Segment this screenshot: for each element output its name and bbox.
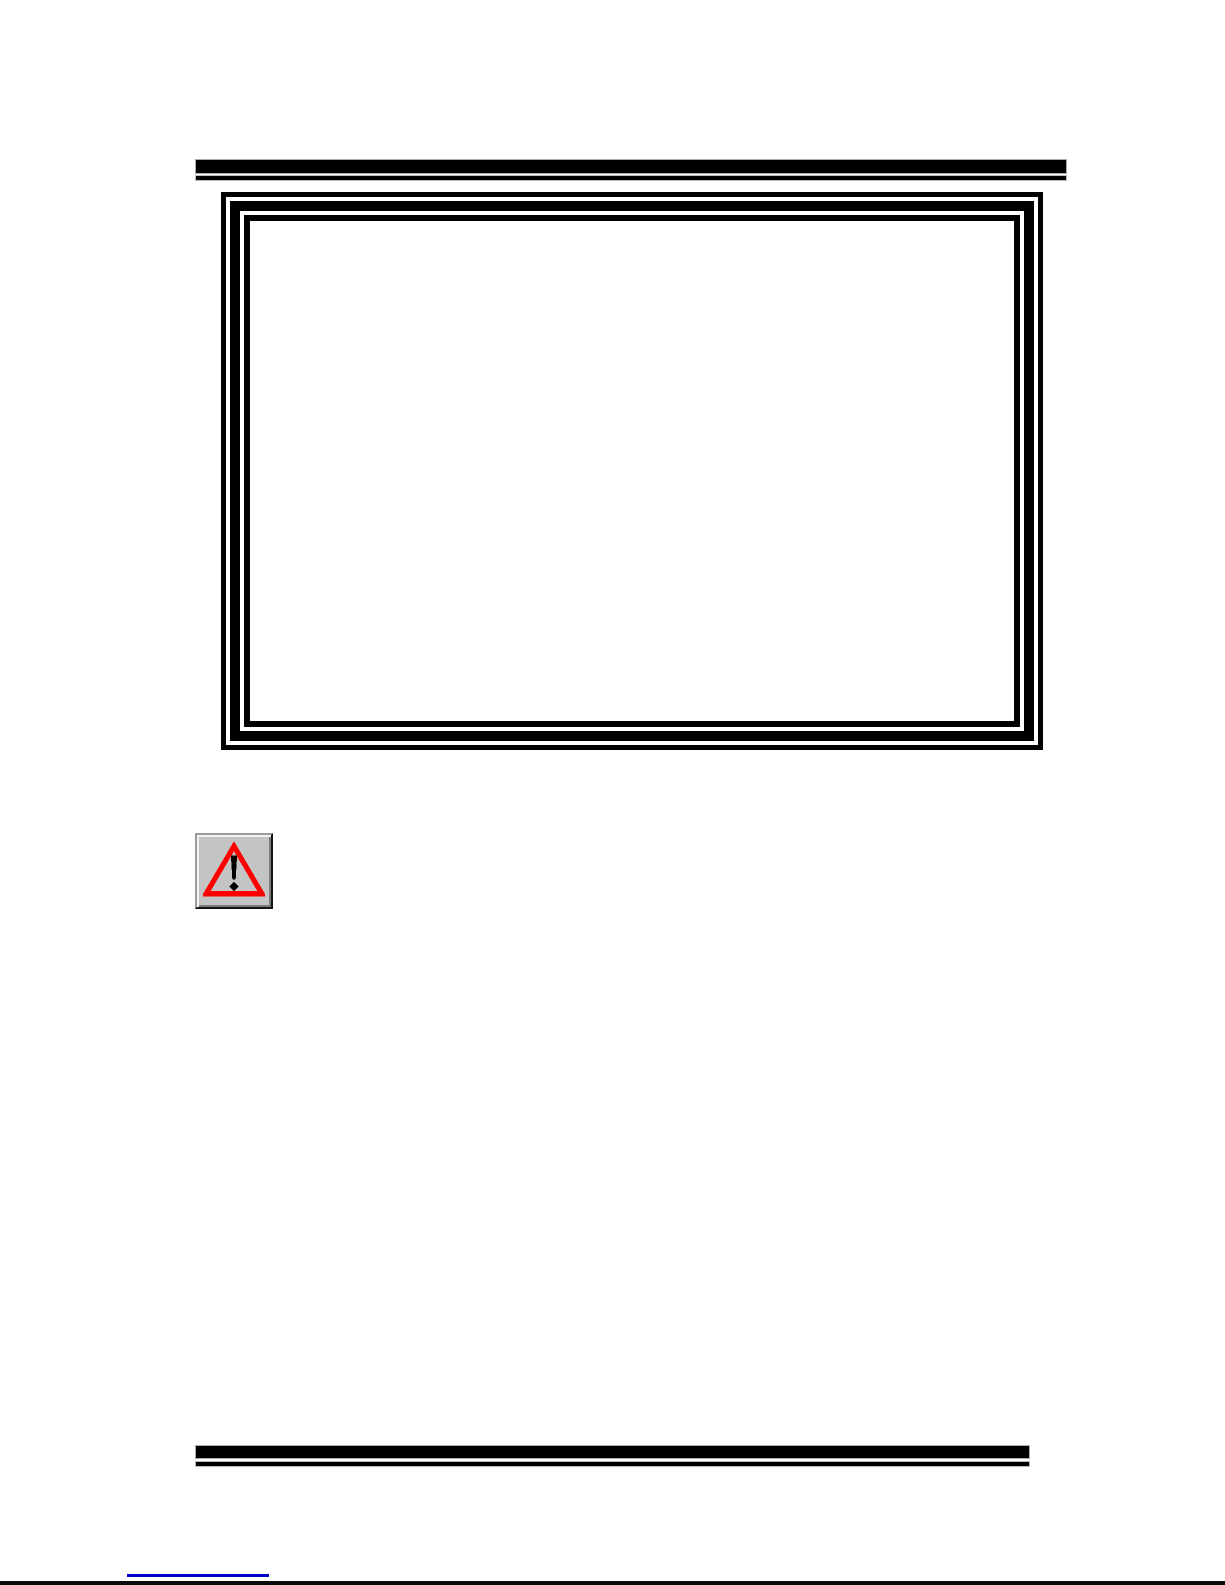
top-rule-thick [196,160,1066,173]
bottom-rule-thick [196,1446,1029,1458]
figure-frame [221,192,1043,750]
warning-triangle-icon [203,842,265,900]
top-rule-thin [196,176,1066,180]
document-page [0,0,1225,1585]
figure-frame-content [244,215,1020,727]
warning-button [195,833,273,909]
footer-link-underline[interactable] [127,1574,269,1577]
page-edge-cutoff-line [0,1581,1225,1585]
bottom-rule-thin [196,1462,1029,1466]
figure-frame-middle [230,201,1034,741]
